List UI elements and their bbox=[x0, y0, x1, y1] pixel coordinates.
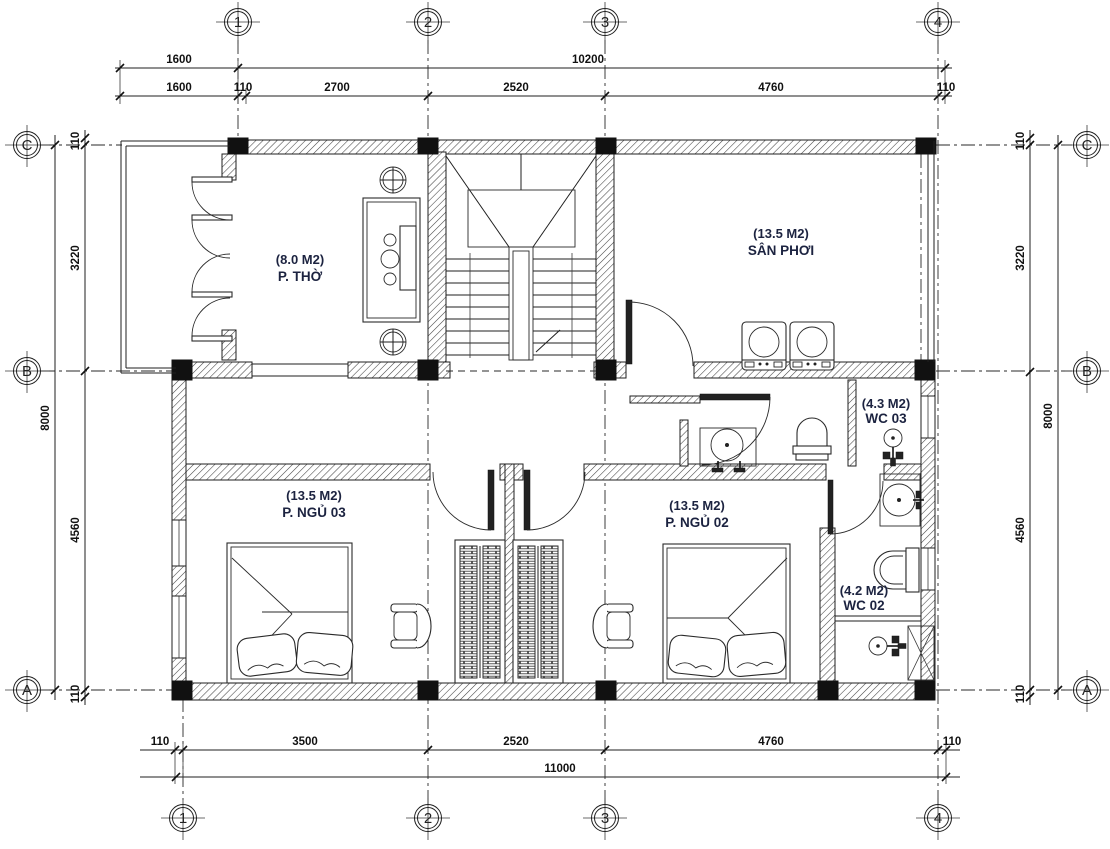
dim-label: 4760 bbox=[758, 82, 784, 94]
room-area: (13.5 M2) bbox=[286, 488, 342, 503]
grid-bubble-label: C bbox=[22, 137, 33, 154]
washing-machine-icon bbox=[790, 322, 834, 370]
floor-plan-page: (8.0 M2)P. THỜ (13.5 M2)SÂN PHƠI (4.3 M2… bbox=[0, 0, 1110, 844]
dim-label: 3220 bbox=[1015, 245, 1027, 271]
pillow-icon bbox=[726, 632, 786, 678]
room-name: P. NGỦ 02 bbox=[665, 515, 729, 530]
pillow-icon bbox=[236, 633, 298, 678]
room-area: (4.2 M2) bbox=[840, 583, 888, 598]
bed-bedroom-03 bbox=[227, 543, 354, 683]
room-name: WC 03 bbox=[865, 411, 907, 426]
grid-bubble-label: 4 bbox=[934, 14, 942, 31]
pillow-icon bbox=[667, 634, 727, 678]
grid-bubble-label: B bbox=[22, 363, 32, 380]
grid-bubble-label: B bbox=[1082, 363, 1092, 380]
room-name: SÂN PHƠI bbox=[748, 243, 814, 258]
ceiling-light-icon bbox=[380, 167, 406, 193]
dim-label: 8000 bbox=[40, 405, 52, 431]
dim-label: 1600 bbox=[166, 82, 192, 94]
grid-bubble-label: 1 bbox=[179, 810, 187, 827]
floor-plan-canvas: (8.0 M2)P. THỜ (13.5 M2)SÂN PHƠI (4.3 M2… bbox=[0, 0, 1110, 844]
dim-label: 110 bbox=[234, 82, 253, 94]
grid-bubble-label: 4 bbox=[934, 810, 942, 827]
dim-label: 3220 bbox=[70, 245, 82, 271]
room-name: WC 02 bbox=[843, 598, 884, 613]
dim-label: 1600 bbox=[166, 54, 192, 66]
grid-bubble-label: 2 bbox=[424, 810, 432, 827]
room-area: (8.0 M2) bbox=[276, 252, 324, 267]
paper-background bbox=[0, 0, 1110, 844]
dim-label: 4760 bbox=[758, 736, 784, 748]
washing-machine-icon bbox=[742, 322, 786, 370]
dim-label: 110 bbox=[70, 685, 82, 704]
grid-bubble-label: 3 bbox=[601, 810, 609, 827]
dim-label: 110 bbox=[937, 82, 956, 94]
wardrobe-icon bbox=[513, 540, 563, 683]
dim-label: 11000 bbox=[544, 763, 575, 775]
grid-bubble-label: C bbox=[1082, 137, 1093, 154]
room-label-wc03: (4.3 M2)WC 03 bbox=[862, 396, 910, 426]
dim-label: 2700 bbox=[324, 82, 350, 94]
dim-label: 2520 bbox=[503, 736, 529, 748]
dim-label: 2520 bbox=[503, 82, 529, 94]
dim-label: 4560 bbox=[1015, 517, 1027, 543]
bed-bedroom-02 bbox=[663, 544, 790, 683]
room-name: P. NGỦ 03 bbox=[282, 505, 346, 520]
pillow-icon bbox=[295, 632, 353, 677]
dim-label: 110 bbox=[1015, 685, 1027, 704]
room-name: P. THỜ bbox=[278, 269, 323, 284]
room-area: (13.5 M2) bbox=[753, 226, 809, 241]
dim-label: 3500 bbox=[292, 736, 318, 748]
room-area: (4.3 M2) bbox=[862, 396, 910, 411]
room-area: (13.5 M2) bbox=[669, 498, 725, 513]
dim-label: 8000 bbox=[1043, 403, 1055, 429]
dim-label: 110 bbox=[943, 736, 962, 748]
room-label-wc02: (4.2 M2)WC 02 bbox=[840, 583, 888, 613]
ceiling-light-icon bbox=[380, 329, 406, 355]
dim-label: 4560 bbox=[70, 517, 82, 543]
dim-label: 110 bbox=[151, 736, 170, 748]
grid-bubble-label: 1 bbox=[234, 14, 242, 31]
grid-bubble-label: A bbox=[22, 682, 32, 699]
dim-label: 10200 bbox=[572, 54, 604, 66]
grid-bubble-label: A bbox=[1082, 682, 1092, 699]
grid-bubble-label: 2 bbox=[424, 14, 432, 31]
dim-label: 110 bbox=[1015, 132, 1027, 151]
grid-bubble-label: 3 bbox=[601, 14, 609, 31]
dim-label: 110 bbox=[70, 132, 82, 151]
wardrobe-icon bbox=[455, 540, 505, 683]
